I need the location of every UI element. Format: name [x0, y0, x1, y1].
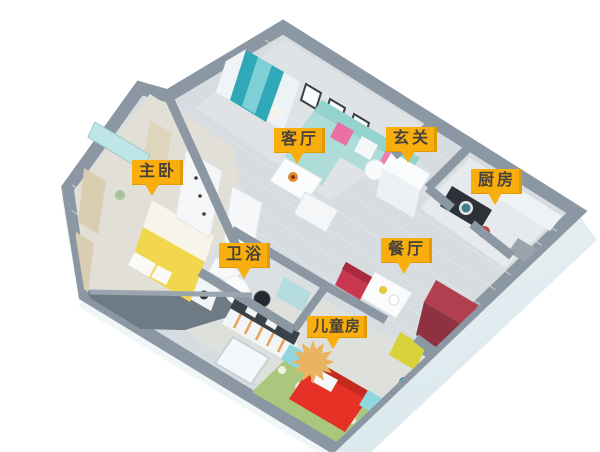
room-label-dining-room: 餐厅: [381, 238, 432, 263]
floorplan-3d-render: [0, 0, 600, 452]
floor-lamp: [270, 106, 282, 118]
room-label-master-bedroom: 主卧: [132, 160, 183, 185]
room-label-living-room: 客厅: [274, 128, 325, 153]
room-label-entryway: 玄关: [386, 127, 437, 152]
room-label-kitchen: 厨房: [471, 169, 522, 194]
plant: [115, 190, 125, 200]
floorplan-figure: 主卧 客厅 玄关 厨房 卫浴 餐厅 儿童房: [0, 0, 600, 452]
room-label-kids-room: 儿童房: [307, 316, 367, 338]
room-label-bathroom: 卫浴: [219, 243, 270, 268]
